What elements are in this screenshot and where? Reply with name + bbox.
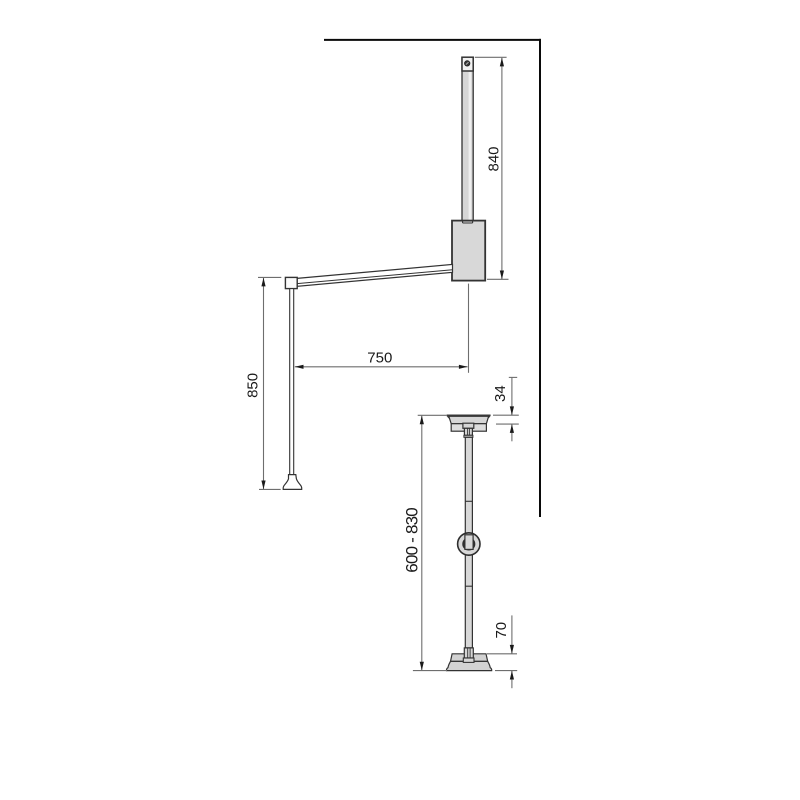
svg-text:850: 850 — [245, 373, 262, 398]
svg-text:840: 840 — [485, 146, 502, 171]
svg-text:34: 34 — [492, 385, 509, 402]
svg-text:70: 70 — [493, 622, 510, 639]
svg-text:750: 750 — [367, 350, 392, 367]
svg-text:600 - 830: 600 - 830 — [403, 508, 422, 573]
